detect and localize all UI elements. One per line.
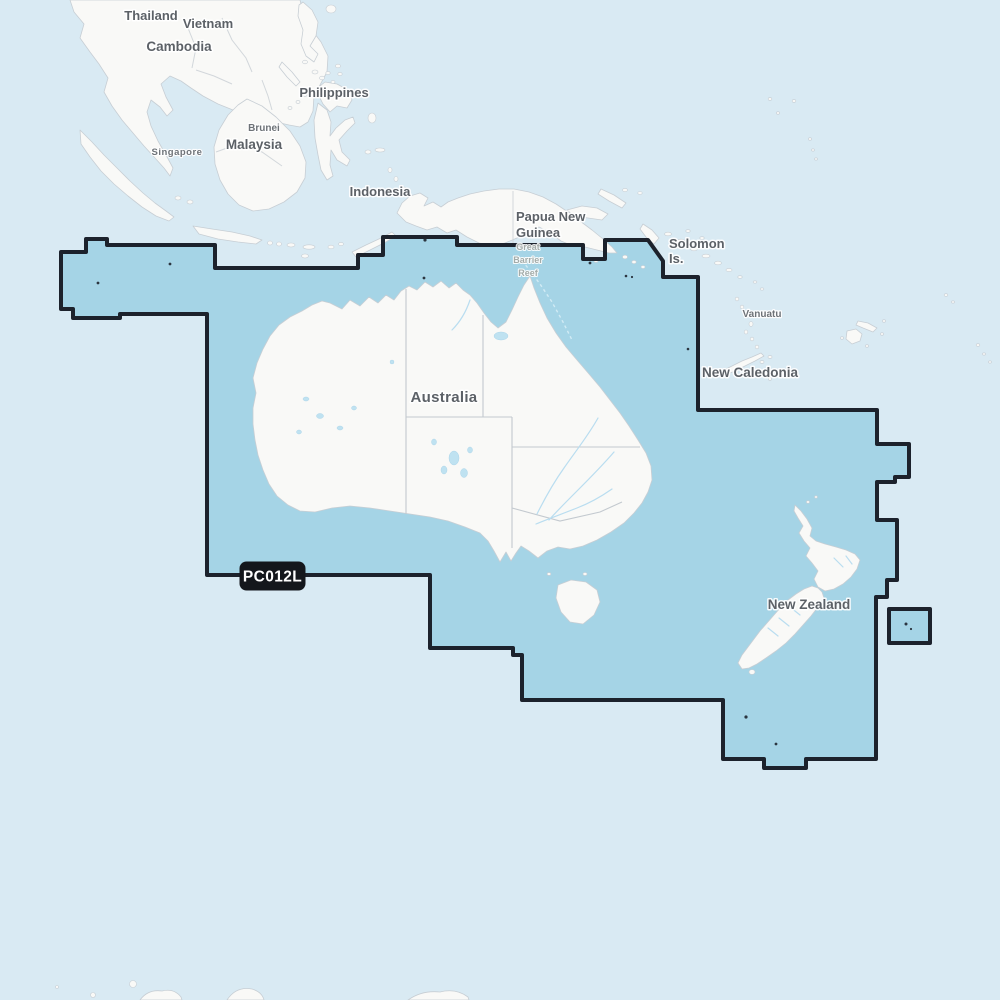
label-great-barrier-reef-line2: Barrier [513, 255, 543, 265]
region-code-badge-text: PC012L [243, 569, 302, 586]
label-solomon-islands-line2: Is. [669, 251, 683, 266]
label-thailand: Thailand [124, 8, 178, 23]
region-code-badge[interactable]: PC012L [240, 562, 306, 591]
label-vanuatu: Vanuatu [743, 309, 782, 320]
label-solomon-islands-line1: Solomon [669, 236, 725, 251]
label-malaysia: Malaysia [226, 137, 283, 152]
hainan-island [326, 5, 336, 13]
map-svg: Thailand Vietnam Cambodia Philippines Br… [0, 0, 1000, 1000]
label-great-barrier-reef-line1: Great [516, 242, 540, 252]
label-new-caledonia: New Caledonia [702, 365, 799, 380]
chatham-islands-polygon[interactable] [889, 609, 930, 643]
chart-coverage-map: Thailand Vietnam Cambodia Philippines Br… [0, 0, 1000, 1000]
label-indonesia: Indonesia [350, 184, 411, 199]
label-cambodia: Cambodia [146, 39, 212, 54]
label-vietnam: Vietnam [183, 16, 233, 31]
label-philippines: Philippines [299, 85, 368, 100]
label-papua-new-guinea-line2: Guinea [516, 225, 561, 240]
label-australia: Australia [411, 389, 478, 406]
label-singapore: Singapore [152, 147, 203, 158]
label-new-zealand: New Zealand [768, 597, 851, 612]
label-papua-new-guinea-line1: Papua New [516, 209, 586, 224]
label-great-barrier-reef-line3: Reef [518, 268, 539, 278]
label-brunei: Brunei [248, 123, 280, 134]
